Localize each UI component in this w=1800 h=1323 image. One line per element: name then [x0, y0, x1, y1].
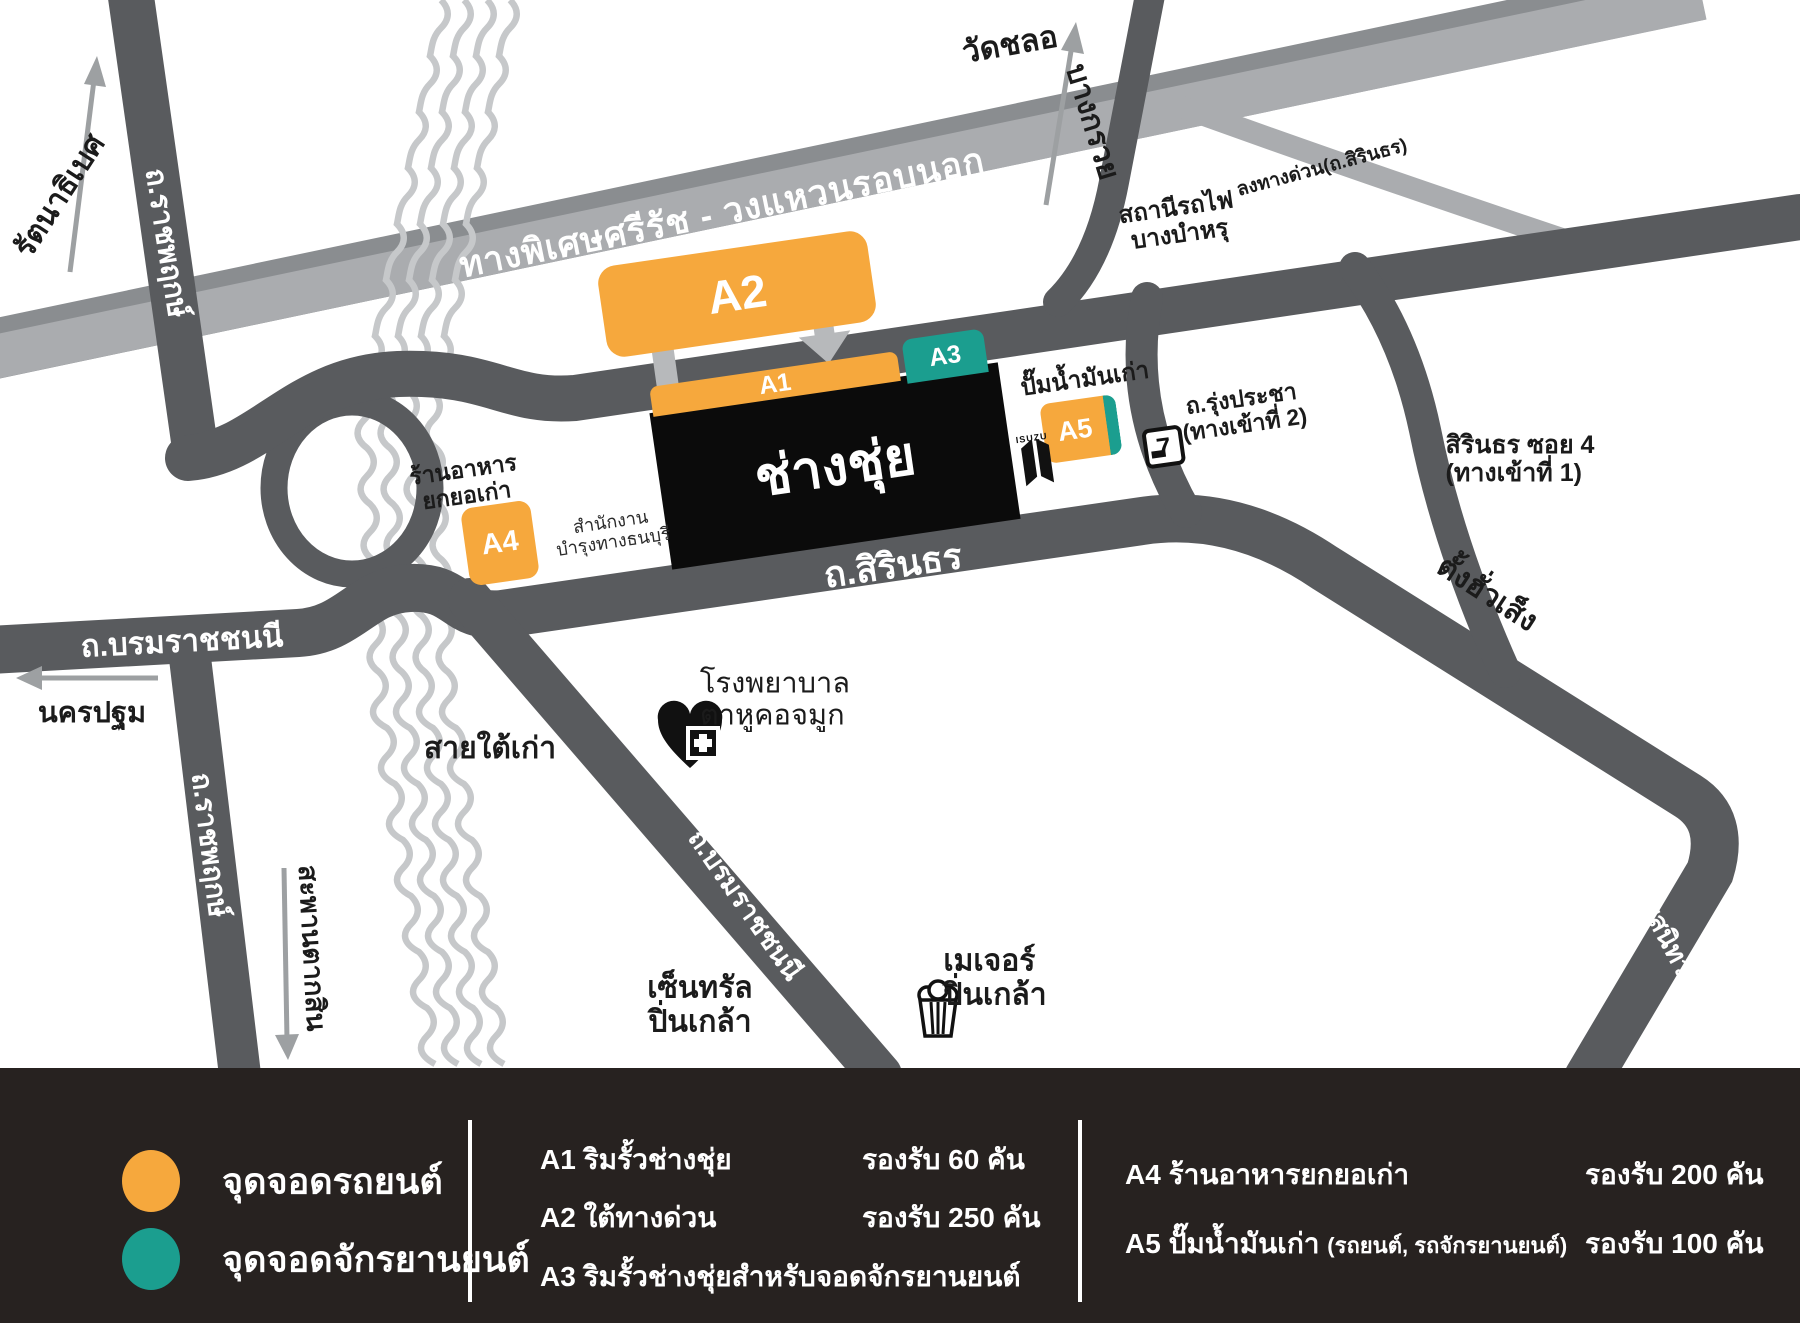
- row-a4-name: ร้านอาหารยกยอเก่า: [1169, 1159, 1410, 1190]
- parking-zone-a4: A4: [460, 500, 540, 587]
- arrow-nakhon-pathom-icon: [16, 666, 158, 690]
- legend-cap-a1: รองรับ 60 คัน: [862, 1138, 1025, 1182]
- label-sai-tai-kao: สายใต้เก่า: [424, 732, 556, 766]
- a5-label: A5: [1056, 412, 1094, 448]
- legend-row-a5: A5 ปั๊มน้ำมันเก่า (รถยนต์, รถจักรยานยนต์…: [1125, 1222, 1567, 1266]
- bike-parking-dot: [122, 1228, 180, 1290]
- soi4-line2: (ทางเข้าที่ 1): [1446, 459, 1595, 487]
- label-hospital: โรงพยาบาล ตาหูคอจมูก: [700, 668, 850, 733]
- row-a1-name: ริมรั้วช่างชุ่ย: [584, 1144, 732, 1175]
- label-nakhon-pathom: นครปฐม: [38, 697, 146, 729]
- road-sirindhorn-lower: [0, 518, 1715, 1078]
- row-a2-name: ใต้ทางด่วน: [584, 1202, 717, 1233]
- changchui-logo: ช่างชุ่ย: [749, 412, 921, 520]
- hospital-line2: ตาหูคอจมูก: [700, 700, 850, 732]
- legend-cap-a2: รองรับ 250 คัน: [862, 1196, 1041, 1240]
- hospital-line1: โรงพยาบาล: [700, 668, 850, 700]
- a4-label: A4: [479, 524, 520, 562]
- legend-cap-a5: รองรับ 100 คัน: [1585, 1222, 1764, 1266]
- a3-label: A3: [927, 339, 963, 372]
- row-a3-code: A3: [540, 1261, 576, 1292]
- soi4-line1: สิรินธร ซอย 4: [1446, 431, 1595, 459]
- row-a5-code: A5: [1125, 1228, 1161, 1259]
- isuzu-logo-icon: ISUZU: [1016, 435, 1049, 445]
- legend-divider-1: [468, 1120, 472, 1302]
- a1-label: A1: [757, 367, 793, 400]
- label-central-pinklao: เซ็นทรัล ปิ่นเกล้า: [647, 971, 752, 1038]
- label-major-pinklao: เมเจอร์ ปิ่นเกล้า: [943, 944, 1046, 1011]
- row-a5-name: ปั๊มน้ำมันเก่า: [1169, 1228, 1320, 1259]
- legend-row-a3: A3 ริมรั้วช่างชุ่ยสำหรับจอดจักรยานยนต์: [540, 1255, 1021, 1299]
- central-line1: เซ็นทรัล: [647, 971, 752, 1005]
- row-a3-name: ริมรั้วช่างชุ่ยสำหรับจอดจักรยานยนต์: [584, 1261, 1021, 1292]
- row-a4-code: A4: [1125, 1159, 1161, 1190]
- central-line2: ปิ่นเกล้า: [647, 1005, 752, 1039]
- legend-row-a2: A2 ใต้ทางด่วน: [540, 1196, 716, 1240]
- legend-row-a1: A1 ริมรั้วช่างชุ่ย: [540, 1138, 732, 1182]
- legend-divider-2: [1078, 1120, 1082, 1302]
- major-line2: ปิ่นเกล้า: [943, 978, 1046, 1012]
- legend-bike-label: จุดจอดจักรยานยนต์: [222, 1231, 530, 1288]
- legend-car-label: จุดจอดรถยนต์: [222, 1153, 443, 1210]
- car-parking-dot: [122, 1150, 180, 1212]
- legend-cap-a4: รองรับ 200 คัน: [1585, 1153, 1764, 1197]
- row-a2-code: A2: [540, 1202, 576, 1233]
- row-a1-code: A1: [540, 1144, 576, 1175]
- major-line1: เมเจอร์: [943, 944, 1046, 978]
- label-sirindhorn-soi4: สิรินธร ซอย 4 (ทางเข้าที่ 1): [1446, 431, 1595, 487]
- a2-label: A2: [704, 263, 770, 325]
- map-canvas: A2 ช่างชุ่ย A1 A3 A4 A5: [0, 0, 1800, 1323]
- row-a5-note: (รถยนต์, รถจักรยานยนต์): [1327, 1233, 1567, 1258]
- legend-row-a4: A4 ร้านอาหารยกยอเก่า: [1125, 1153, 1409, 1197]
